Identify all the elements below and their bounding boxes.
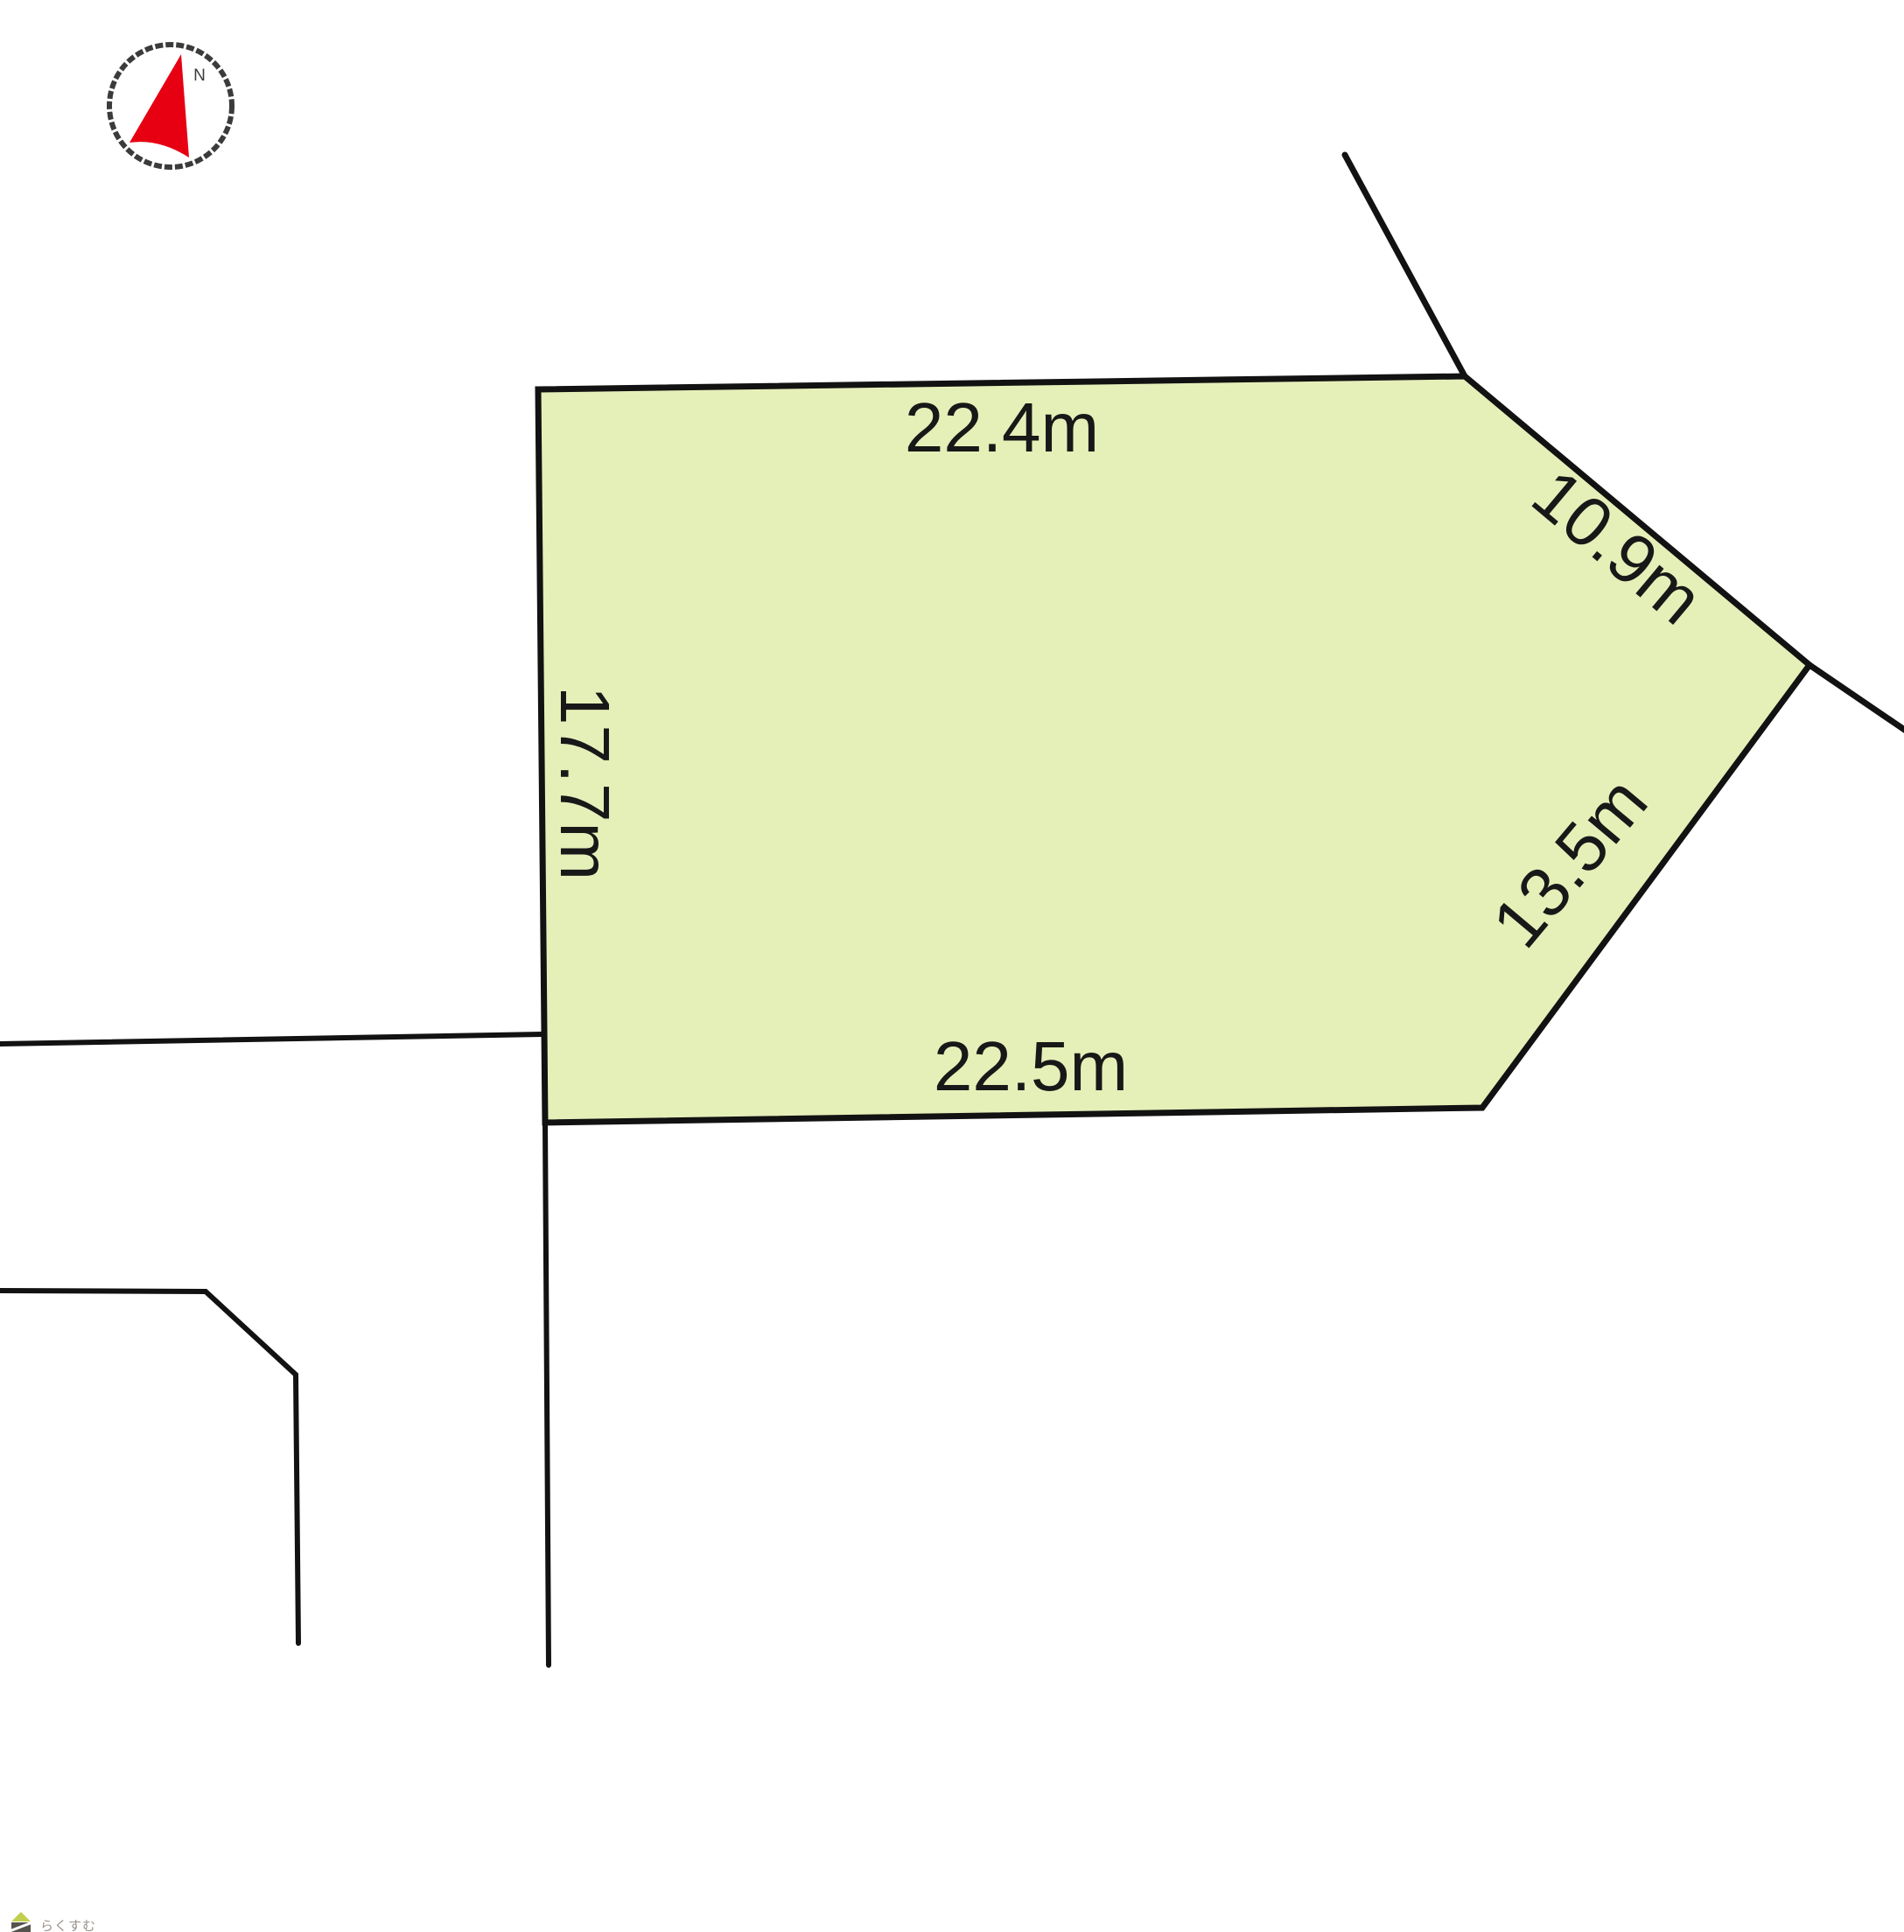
- road-line-left: [0, 1034, 542, 1044]
- watermark-logo: らくすむ: [10, 1912, 96, 1932]
- road-line-lower-left: [0, 1291, 298, 1643]
- site-plan-canvas: 22.4m 17.7m 10.9m 13.5m 22.5m N らくすむ: [0, 0, 1904, 1932]
- land-plot-polygon: [538, 376, 1809, 1123]
- dimension-label-left: 17.7m: [546, 686, 624, 880]
- road-line-upper-right: [1345, 155, 1465, 376]
- compass-north-label: N: [193, 66, 206, 85]
- road-line-below-plot: [545, 1123, 549, 1665]
- compass-north-icon: N: [109, 45, 232, 167]
- dimension-label-bottom: 22.5m: [934, 1027, 1128, 1105]
- site-plan-drawing: 22.4m 17.7m 10.9m 13.5m 22.5m N らくすむ: [0, 0, 1904, 1932]
- watermark-text: らくすむ: [40, 1918, 96, 1932]
- dimension-label-top: 22.4m: [905, 388, 1099, 466]
- road-line-right-exit: [1809, 665, 1904, 731]
- watermark-house-roof-icon: [11, 1912, 31, 1921]
